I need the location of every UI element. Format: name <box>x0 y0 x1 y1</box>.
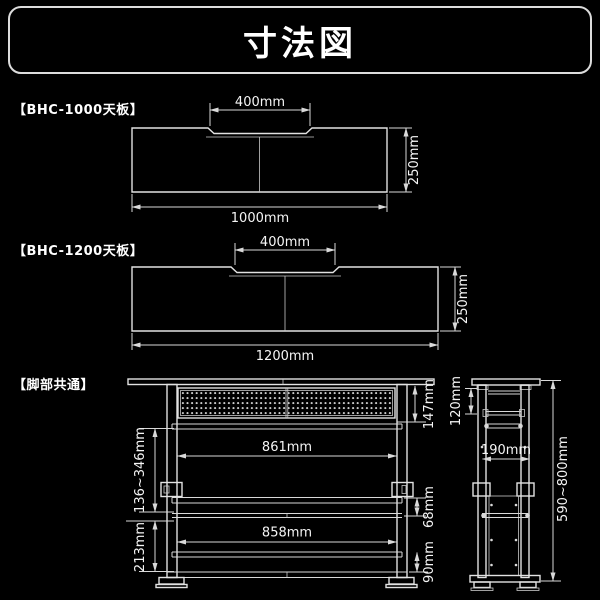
side-cross-bars <box>483 391 525 428</box>
dim-panel-height: 147mm <box>397 379 437 429</box>
front-tabletop <box>128 379 434 385</box>
front-hang-rail <box>172 424 402 429</box>
dim-label-top-1200: 400mm <box>260 235 310 250</box>
side-clamps <box>473 483 534 496</box>
front-lower-rail <box>172 552 402 557</box>
dim-height-range: 590~800mm <box>541 381 571 582</box>
dim-label-213: 213mm <box>133 522 148 572</box>
bhc-1200-drawing: 400mm 250mm 1200mm <box>132 235 471 364</box>
dim-bottom-1000: 1000mm <box>132 194 387 226</box>
dim-label-190: 190mm <box>481 443 531 458</box>
bhc-1000-drawing: 400mm 250mm 1000mm <box>132 95 422 226</box>
dim-top-section: 120mm <box>449 376 477 426</box>
side-tabletop <box>472 379 540 385</box>
dim-top-400-1000: 400mm <box>210 95 310 126</box>
dim-bottom-1200: 1200mm <box>132 333 438 364</box>
dim-side-250-1200: 250mm <box>440 267 471 331</box>
dim-label-861: 861mm <box>262 440 312 455</box>
dim-label-90: 90mm <box>422 541 437 583</box>
dim-label-858: 858mm <box>262 526 312 541</box>
side-rear-post <box>521 385 529 578</box>
front-right-leg <box>397 385 407 578</box>
dimension-diagram: 400mm 250mm 1000mm <box>0 0 600 600</box>
dim-label-top-1000: 400mm <box>235 95 285 110</box>
dim-label-68: 68mm <box>422 486 437 528</box>
dim-top-400-1200: 400mm <box>235 235 335 265</box>
dim-label-136-346: 136~346mm <box>133 427 148 513</box>
front-mesh-panel <box>178 388 395 418</box>
front-left-clamp <box>161 483 182 497</box>
dim-label-bottom-1000: 1000mm <box>231 211 289 226</box>
legs-side-view: 120mm 190mm 590~800mm <box>449 376 571 591</box>
front-right-clamp <box>392 483 413 497</box>
front-base-rail <box>167 572 407 578</box>
front-left-foot <box>156 578 187 588</box>
dim-label-side-1000: 250mm <box>407 135 422 185</box>
dim-label-590-800: 590~800mm <box>556 436 571 522</box>
front-right-foot <box>386 578 417 588</box>
legs-front-view: 147mm 136~346mm 861mm 68mm 858mm <box>126 379 437 588</box>
dim-label-side-1200: 250mm <box>456 274 471 324</box>
side-lower-frame <box>481 446 530 576</box>
front-left-leg <box>167 385 177 578</box>
dim-upper-width: 861mm <box>178 440 397 456</box>
dimension-sheet: 寸法図 【BHC-1000天板】 【BHC-1200天板】 【脚部共通】 400… <box>0 0 600 600</box>
front-mid-rails <box>172 498 402 518</box>
dim-label-120: 120mm <box>449 376 464 426</box>
dim-rail-gap: 68mm <box>404 486 437 528</box>
dim-depth: 190mm <box>481 443 531 459</box>
dim-label-bottom-1200: 1200mm <box>256 349 314 364</box>
dim-lower-width: 858mm <box>178 526 397 543</box>
dim-side-250-1000: 250mm <box>389 128 422 192</box>
side-front-post <box>478 385 486 578</box>
dim-adjust-range: 136~346mm <box>133 427 174 513</box>
dim-base-height: 90mm <box>409 541 437 583</box>
dim-label-147: 147mm <box>422 379 437 429</box>
